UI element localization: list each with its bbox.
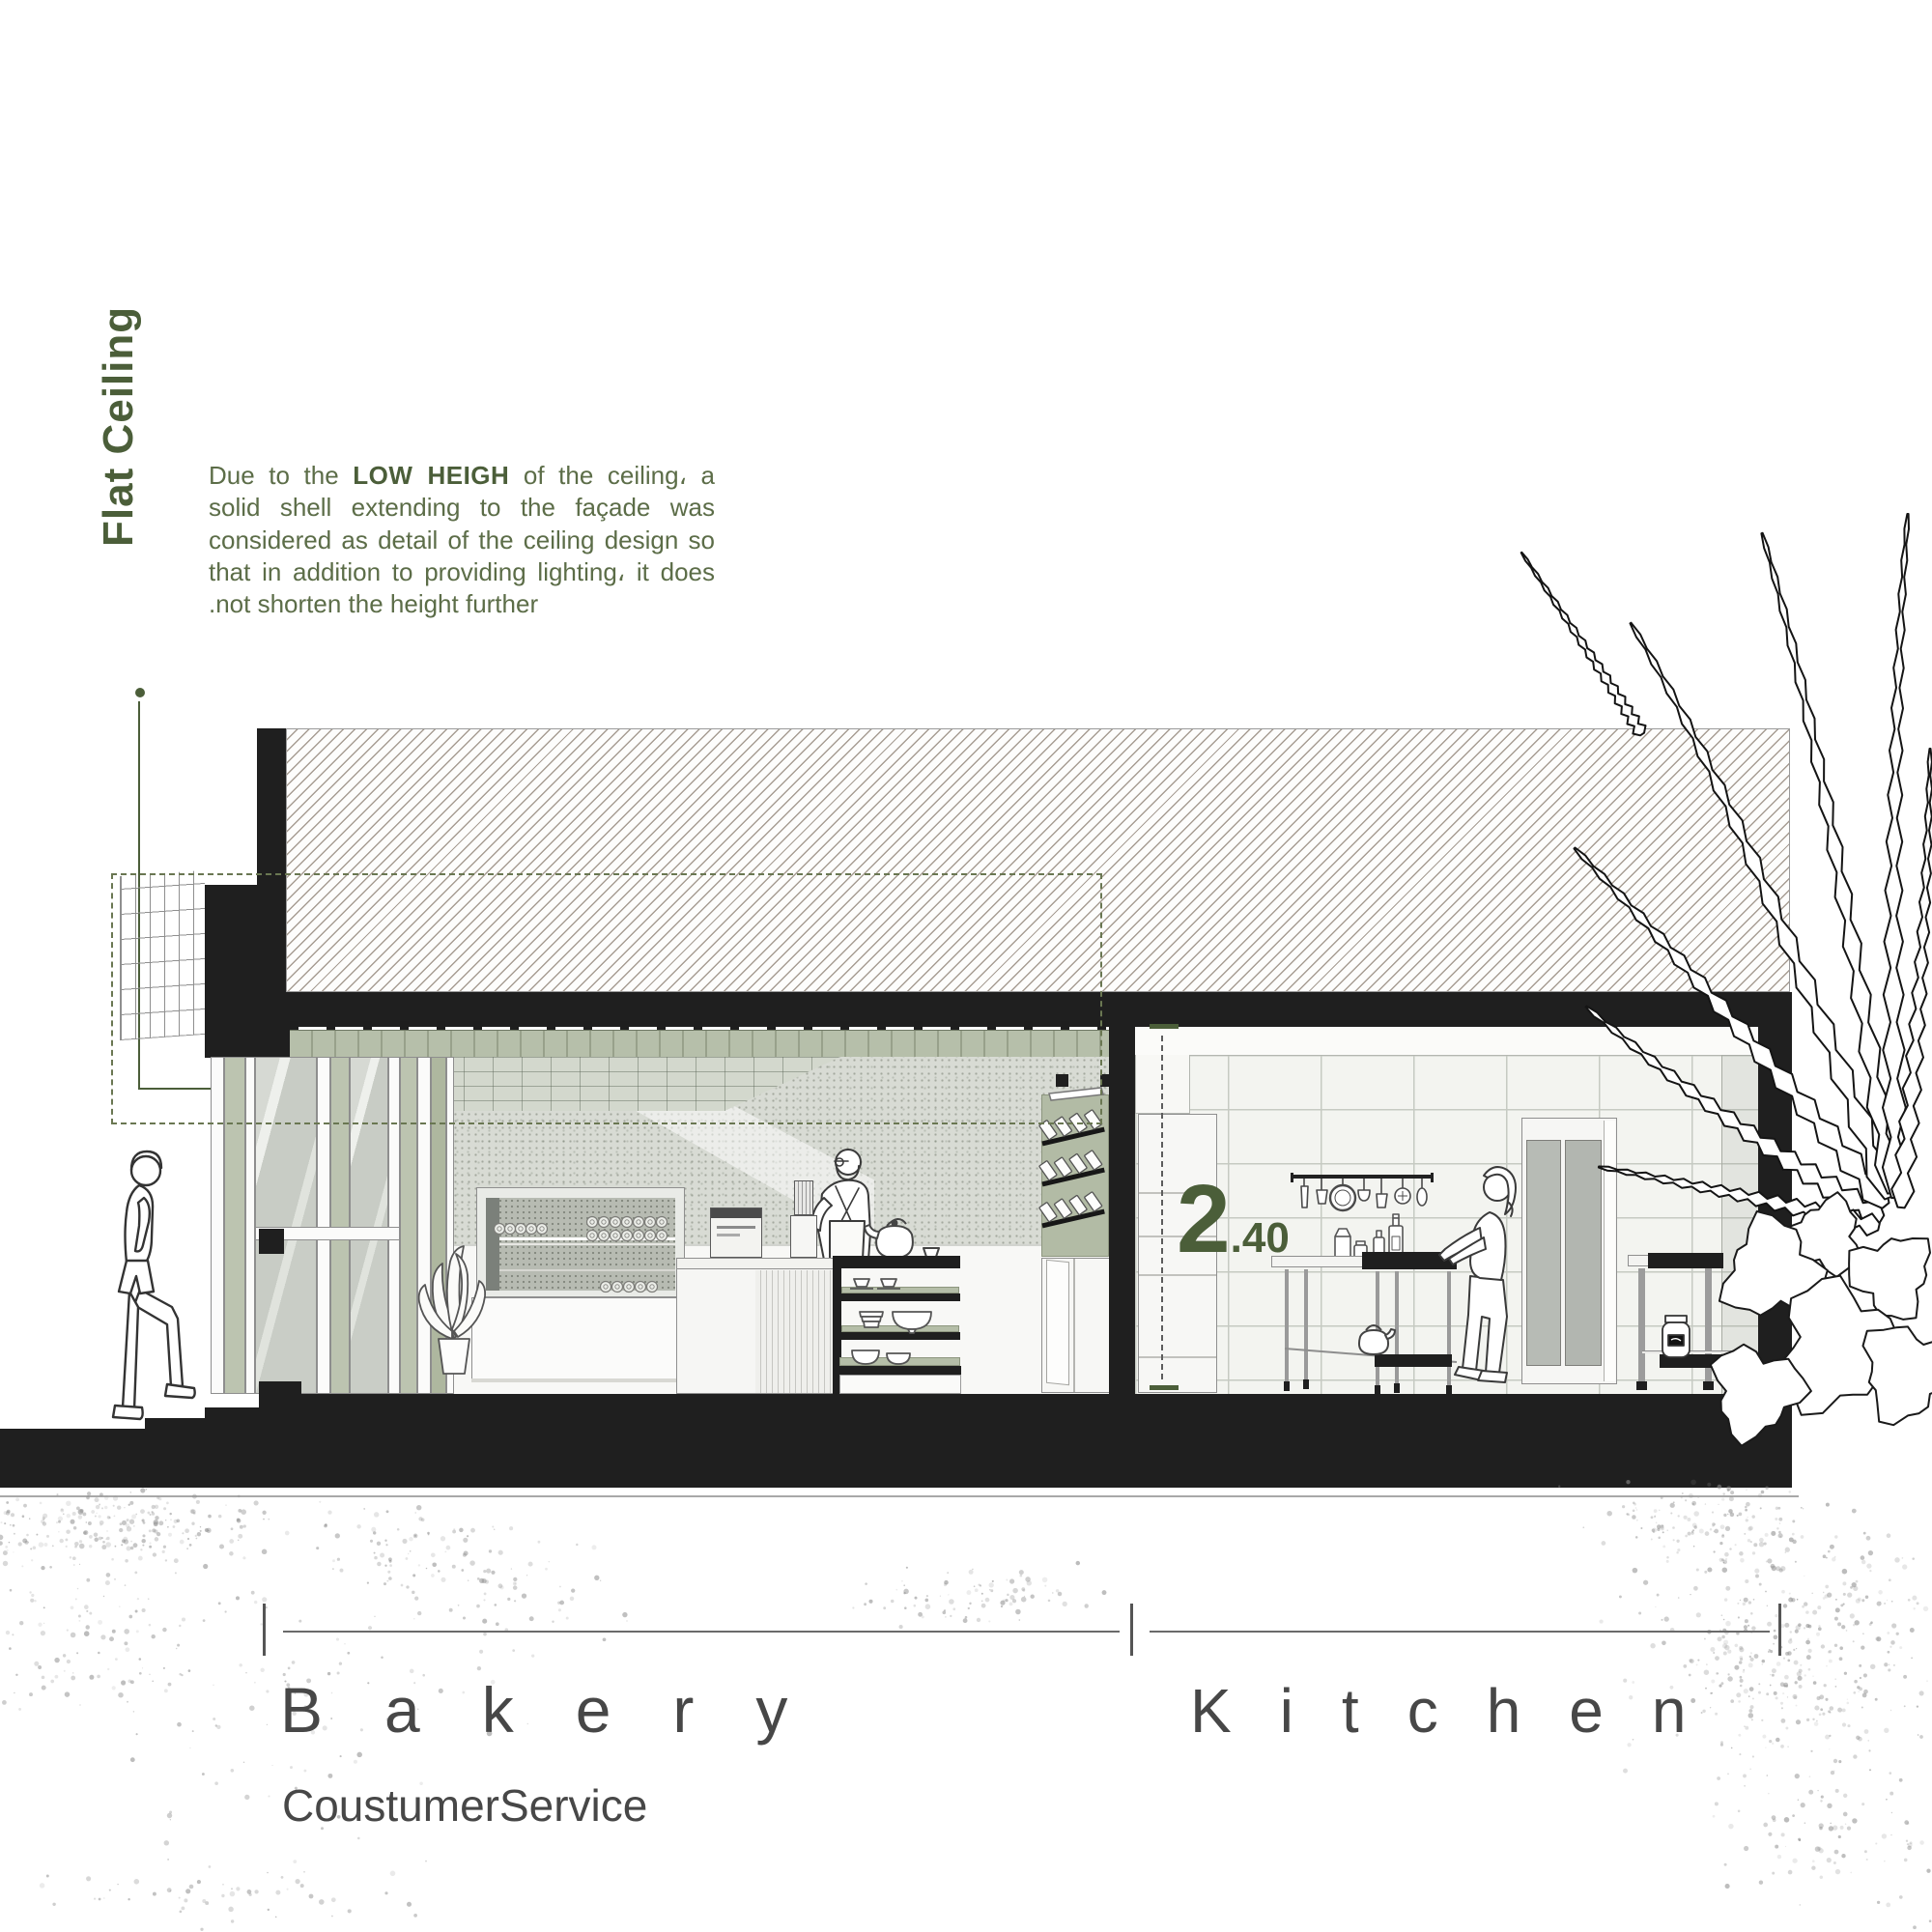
- ceiling-detail-dashed-box: [111, 873, 1102, 1124]
- kitchen-label: Kitchen: [1190, 1675, 1734, 1747]
- extent-tick-middle: [1130, 1604, 1133, 1656]
- bakery-label: Bakery: [280, 1673, 849, 1747]
- architectural-section-board: Flat Ceiling Due to the LOW HEIGH of the…: [0, 0, 1932, 1932]
- kitchen-extent-line: [1150, 1631, 1770, 1633]
- bakery-extent-line: [283, 1631, 1120, 1633]
- extent-tick-right: [1778, 1604, 1781, 1656]
- extent-tick-left: [263, 1604, 266, 1656]
- bakery-sublabel: CoustumerService: [282, 1779, 647, 1832]
